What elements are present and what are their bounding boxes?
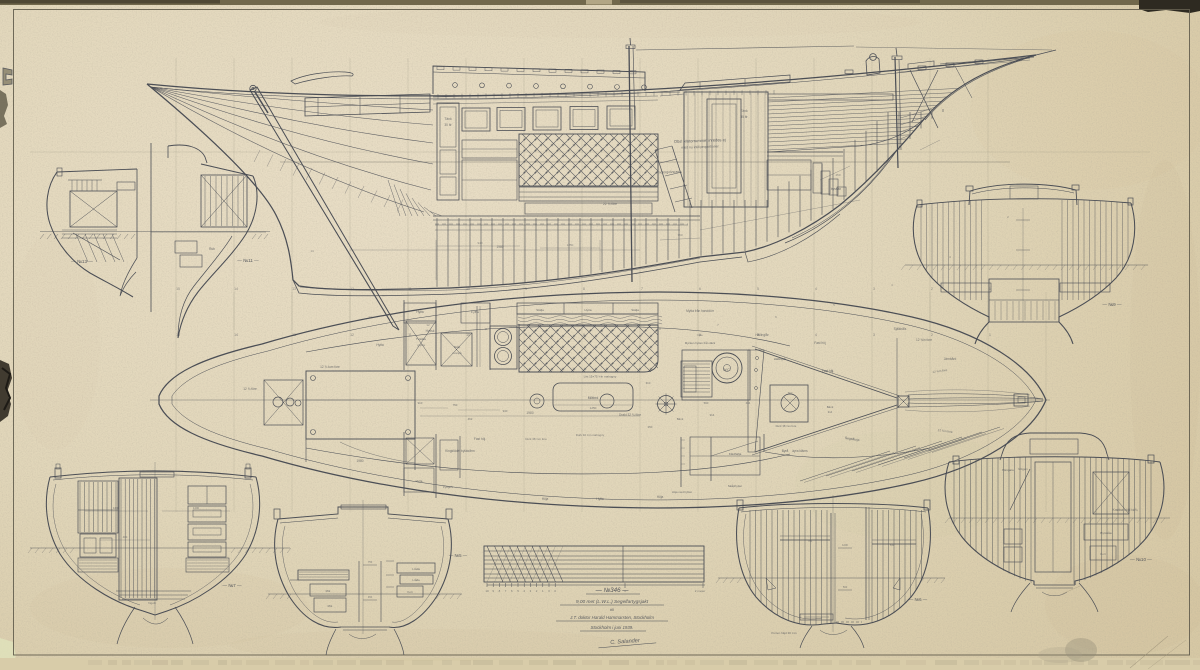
svg-text:450: 450 — [368, 595, 373, 599]
svg-text:Möt: Möt — [328, 604, 333, 608]
svg-text:5: 5 — [757, 287, 759, 291]
svg-text:14: 14 — [234, 287, 238, 291]
svg-text:2: 2 — [931, 287, 933, 291]
svg-text:1400: 1400 — [113, 506, 120, 510]
svg-text:Fyffta: Fyffta — [471, 310, 479, 314]
svg-text:Fast höj.: Fast höj. — [474, 437, 486, 441]
svg-text:22 ¾ före: 22 ¾ före — [603, 202, 617, 206]
svg-text:Stöj: Stöj — [788, 391, 793, 395]
svg-text:Hängare: Hängare — [1002, 468, 1014, 472]
svg-text:Stälja: Stälja — [631, 308, 639, 312]
svg-text:Durk 32 ¾in mahogny: Durk 32 ¾in mahogny — [576, 433, 605, 437]
svg-text:Själkbåls: Själkbåls — [894, 327, 907, 331]
svg-text:Durk 38 ¾in fore: Durk 38 ¾in fore — [525, 437, 547, 441]
svg-text:Klädhäfja: Klädhäfja — [729, 452, 742, 456]
svg-text:9: 9 — [525, 287, 527, 291]
svg-text:— №6 —: — №6 — — [909, 597, 928, 602]
svg-text:5: 5 — [757, 333, 759, 337]
svg-text:— №5 —: — №5 — — [449, 553, 468, 558]
svg-text:Mytta från handdörr: Mytta från handdörr — [686, 309, 715, 313]
svg-text:ovanpå: ovanpå — [452, 351, 462, 355]
svg-text:13: 13 — [292, 287, 296, 291]
svg-text:Järnbård: Järnbård — [944, 357, 957, 361]
svg-text:1: 1 — [989, 287, 991, 291]
svg-text:4: 4 — [815, 333, 817, 337]
svg-text:Skåphytter: Skåphytter — [728, 484, 742, 488]
svg-text:grytta: grytta — [417, 343, 425, 347]
svg-text:Bänk: Bänk — [827, 405, 834, 409]
svg-text:3: 3 — [873, 287, 875, 291]
svg-text:Möt: Möt — [326, 589, 331, 593]
svg-text:1: 1 — [989, 333, 991, 337]
svg-text:Hyttsk: Hyttsk — [426, 329, 435, 333]
svg-text:6: 6 — [699, 287, 701, 291]
svg-text:914: 914 — [828, 410, 833, 414]
svg-text:Porten häjd 30 ¾in: Porten häjd 30 ¾in — [771, 631, 797, 635]
svg-text:Tänk: Tänk — [444, 117, 452, 121]
svg-text:Durk 38 ¾in fore: Durk 38 ¾in fore — [776, 424, 797, 428]
svg-text:1980: 1980 — [356, 459, 363, 463]
svg-text:3: 3 — [873, 333, 875, 337]
svg-text:— №13 —: — №13 — — [71, 259, 93, 264]
svg-text:940: 940 — [503, 409, 508, 413]
svg-text:7: 7 — [641, 333, 643, 337]
svg-text:1980: 1980 — [526, 411, 534, 415]
svg-text:760: 760 — [808, 539, 813, 543]
svg-text:910: 910 — [418, 401, 423, 405]
svg-text:Fast höj: Fast höj — [814, 341, 826, 345]
svg-text:— №10 —: — №10 — — [1130, 557, 1152, 562]
svg-text:14: 14 — [234, 333, 238, 337]
svg-text:13: 13 — [368, 315, 372, 319]
svg-text:1980: 1980 — [496, 245, 503, 249]
svg-text:15: 15 — [176, 333, 180, 337]
svg-text:Bänk: Bänk — [677, 417, 684, 421]
svg-text:1200: 1200 — [842, 543, 848, 547]
svg-text:540: 540 — [890, 543, 895, 547]
svg-text:Hällinglår: Hällinglår — [774, 357, 787, 361]
svg-text:Tvädde: Tvädde — [416, 337, 426, 341]
svg-text:Tänk: Tänk — [740, 109, 748, 113]
svg-text:Pyttgolv: Pyttgolv — [443, 485, 454, 489]
svg-text:Höja: Höja — [542, 497, 549, 501]
svg-text:List 15×75 ¾in mahogny: List 15×75 ¾in mahogny — [584, 375, 617, 379]
svg-text:10: 10 — [466, 333, 470, 337]
svg-text:14: 14 — [310, 249, 314, 253]
svg-text:9,00 met (L.W.L.) Segelfartygs: 9,00 met (L.W.L.) Segelfartygsjakt — [576, 599, 649, 605]
svg-text:12: 12 — [426, 323, 430, 327]
svg-text:— №11 —: — №11 — — [237, 258, 259, 263]
svg-text:Krabba höjd №¾: Krabba höjd №¾ — [1113, 508, 1138, 512]
svg-text:6: 6 — [699, 333, 701, 337]
svg-text:Kort: Kort — [1100, 552, 1106, 556]
svg-text:1400: 1400 — [193, 506, 200, 510]
svg-text:750: 750 — [453, 403, 458, 407]
svg-text:4: 4 — [815, 287, 817, 291]
svg-text:450: 450 — [835, 173, 840, 177]
svg-text:250: 250 — [648, 425, 653, 429]
svg-text:2: 2 — [931, 333, 933, 337]
svg-text:Stälja: Stälja — [536, 308, 544, 312]
svg-text:2 meter: 2 meter — [695, 589, 706, 593]
svg-text:10: 10 — [485, 589, 489, 593]
svg-text:Hytta: Hytta — [584, 308, 591, 312]
svg-text:till: till — [610, 607, 614, 612]
svg-text:434: 434 — [746, 401, 751, 405]
svg-text:11: 11 — [484, 327, 487, 331]
svg-text:Drakt 32 ¾ före: Drakt 32 ¾ före — [619, 413, 641, 417]
svg-text:Mycken hytten från däck: Mycken hytten från däck — [685, 341, 716, 345]
svg-text:12: 12 — [350, 333, 354, 337]
svg-text:L.låda: L.låda — [412, 567, 420, 571]
svg-text:480: 480 — [123, 535, 128, 539]
svg-text:500: 500 — [843, 585, 848, 589]
svg-text:Hytta: Hytta — [416, 479, 423, 483]
svg-text:äyra kläms: äyra kläms — [792, 449, 808, 453]
svg-text:1250: 1250 — [567, 243, 574, 247]
svg-text:L.låda: L.låda — [412, 578, 420, 582]
svg-text:— №346 —: — №346 — — [595, 587, 630, 594]
svg-text:byssan: byssan — [831, 187, 842, 191]
svg-text:9: 9 — [525, 333, 527, 337]
svg-text:Hytta: Hytta — [376, 343, 384, 347]
svg-text:15: 15 — [176, 287, 180, 291]
svg-text:11: 11 — [408, 287, 412, 291]
svg-text:Rub: Rub — [209, 247, 215, 251]
svg-text:Skåp: Skåp — [454, 345, 461, 349]
svg-text:12 ¾ före: 12 ¾ före — [243, 387, 257, 391]
svg-text:12: 12 — [350, 287, 354, 291]
svg-text:Kort: Kort — [408, 590, 413, 594]
svg-text:462: 462 — [468, 417, 473, 421]
svg-text:Höja: Höja — [657, 495, 664, 499]
svg-text:10: 10 — [466, 287, 470, 291]
svg-text:Byrå: Byrå — [782, 449, 789, 453]
svg-text:12 ¾in fore: 12 ¾in fore — [916, 338, 932, 342]
svg-text:310: 310 — [646, 381, 651, 385]
svg-text:35 ltr: 35 ltr — [740, 115, 748, 119]
svg-text:7: 7 — [641, 287, 643, 291]
svg-text:760: 760 — [677, 233, 682, 237]
svg-text:Byrskåa: Byrskåa — [1100, 531, 1111, 535]
svg-text:— №9 —: — №9 — — [1102, 302, 1122, 307]
svg-text:11: 11 — [408, 333, 412, 337]
svg-text:— №7 —: — №7 — — [222, 583, 242, 588]
svg-text:1250: 1250 — [590, 406, 597, 410]
svg-text:motorgolvsram: motorgolvsram — [658, 170, 681, 175]
svg-text:8: 8 — [583, 333, 585, 337]
svg-text:8: 8 — [583, 287, 585, 291]
svg-text:Hytta: Hytta — [596, 497, 604, 501]
svg-text:750: 750 — [368, 560, 373, 564]
svg-text:13: 13 — [292, 333, 296, 337]
svg-text:Fast häj.: Fast häj. — [822, 369, 834, 373]
svg-text:Mötbrd: Mötbrd — [588, 396, 599, 400]
svg-text:30 ltr: 30 ltr — [444, 123, 452, 127]
svg-text:10: 10 — [542, 329, 546, 333]
svg-text:590: 590 — [704, 401, 709, 405]
svg-text:Hytta: Hytta — [416, 310, 424, 314]
svg-text:W.C.: W.C. — [723, 368, 731, 372]
svg-text:Höja med hytten: Höja med hytten — [672, 490, 693, 494]
svg-text:J.T. doktor Harald Hammarsten,: J.T. doktor Harald Hammarsten, Stockholm — [569, 615, 654, 620]
svg-text:12 ¾ tum fore: 12 ¾ tum fore — [320, 365, 340, 369]
svg-text:Stockholm i juni 1939.: Stockholm i juni 1939. — [591, 625, 634, 630]
svg-text:940: 940 — [477, 241, 482, 245]
svg-text:914: 914 — [710, 413, 715, 417]
